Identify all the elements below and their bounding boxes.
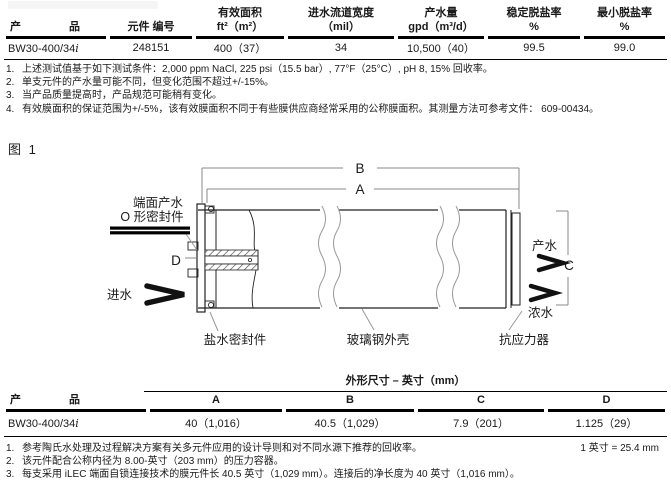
shell-break-marks bbox=[319, 206, 460, 310]
col-header-product-char1: 产 bbox=[10, 394, 21, 408]
end-seal-label-line1: 端面产水 bbox=[133, 196, 184, 210]
col-header-flow-line2: gpd（m³/d） bbox=[408, 21, 473, 35]
end-seal-bar bbox=[110, 227, 190, 230]
cell-product: BW30-400/34i bbox=[4, 42, 108, 55]
cell-min-rejection: 99.0 bbox=[582, 42, 667, 54]
dimensions-span-header: 外形尺寸 – 英寸（mm） bbox=[144, 372, 667, 392]
footnote-number: 4. bbox=[6, 103, 22, 116]
cell-dim-a: 40（1,016） bbox=[148, 415, 284, 431]
feed-arrow-icon bbox=[147, 286, 184, 303]
dim-label-b: B bbox=[355, 161, 364, 176]
col-header-dim-d: D bbox=[603, 394, 611, 408]
footnote-text: 上述测试值基于如下测试条件：2,000 ppm NaCl, 225 psi（15… bbox=[22, 63, 493, 76]
concentrate-label: 浓水 bbox=[528, 306, 554, 320]
cell-product: BW30-400/34i bbox=[4, 417, 148, 430]
anti-telescoping-label: 抗应力器 bbox=[499, 332, 550, 347]
dimensions-table-row: BW30-400/34i 40（1,016） 40.5（1,029） 7.9（2… bbox=[4, 412, 667, 434]
dimensions-table-header-row: 产 品 A B C D bbox=[4, 392, 667, 412]
cell-spacer: 34 bbox=[286, 42, 396, 54]
end-seal-label-line2: O 形密封件 bbox=[120, 209, 183, 224]
table2-bottom-rule bbox=[4, 436, 667, 437]
performance-footnotes: 1. 上述测试值基于如下测试条件：2,000 ppm NaCl, 225 psi… bbox=[6, 63, 667, 116]
permeate-arrow-icon bbox=[539, 256, 563, 270]
col-header-product-char2: 品 bbox=[69, 394, 80, 408]
footnote-text: 参考陶氏水处理及过程解决方案有关多元件应用的设计导则和对不同水源下推荐的回收率。 bbox=[22, 442, 422, 455]
cell-dim-c: 7.9（201） bbox=[416, 415, 546, 431]
fiberglass-shell-label: 玻璃钢外壳 bbox=[347, 333, 410, 347]
footnote-number: 1. bbox=[6, 63, 22, 76]
end-seal-bar bbox=[110, 231, 190, 234]
permeate-label: 产水 bbox=[532, 239, 558, 253]
dim-label-c: C bbox=[564, 258, 574, 273]
cell-part-number: 248151 bbox=[108, 42, 194, 54]
membrane-element-diagram: B A C D 端面产水 O 形密封件 进水 产水 浓水 盐水密封件 玻璃钢外壳… bbox=[0, 153, 671, 358]
col-header-product-char1: 产 bbox=[10, 21, 21, 35]
datasheet-page: 产 品 元件 编号 有效面积 ft²（m²） 进水流道宽度 （mil） 产水量 … bbox=[0, 0, 671, 484]
col-header-product: 产 品 bbox=[6, 394, 80, 408]
footnote: 3. 当产品质量提高时，产品规范可能稍有变化。 bbox=[6, 89, 667, 102]
col-header-min-rejection-line2: % bbox=[620, 21, 630, 35]
col-header-active-area-line2: ft²（m²） bbox=[217, 21, 263, 35]
cell-dim-b: 40.5（1,029） bbox=[284, 415, 416, 431]
footnote-number: 2. bbox=[6, 76, 22, 89]
table1-bottom-rule bbox=[4, 59, 667, 60]
cell-rejection: 99.5 bbox=[486, 42, 582, 54]
footnote: 2. 该元件配合公称内径为 8.00-英寸（203 mm）的压力容器。 bbox=[6, 455, 667, 468]
performance-table-row: BW30-400/34i 248151 400（37） 34 10,500（40… bbox=[4, 39, 667, 57]
leader-lines bbox=[186, 234, 522, 331]
footnote: 4. 有效膜面积的保证范围为+/-5%，该有效膜面积不同于有些膜供应商经常采用的… bbox=[6, 103, 667, 116]
footnote-text: 该元件配合公称内径为 8.00-英寸（203 mm）的压力容器。 bbox=[22, 455, 284, 468]
dim-label-a: A bbox=[355, 182, 364, 197]
footnote-text: 有效膜面积的保证范围为+/-5%，该有效膜面积不同于有些膜供应商经常采用的公称膜… bbox=[22, 103, 599, 116]
col-header-active-area-line1: 有效面积 bbox=[218, 7, 262, 21]
cell-flow: 10,500（40） bbox=[396, 40, 486, 56]
footnote: 1. 上述测试值基于如下测试条件：2,000 ppm NaCl, 225 psi… bbox=[6, 63, 667, 76]
cell-active-area: 400（37） bbox=[194, 40, 286, 56]
cell-dim-d: 1.125（29） bbox=[546, 415, 667, 431]
brine-seal-label: 盐水密封件 bbox=[204, 332, 267, 347]
footnote-number: 1. bbox=[6, 442, 22, 455]
col-header-dim-b: B bbox=[346, 394, 354, 408]
col-header-dim-c: C bbox=[477, 394, 485, 408]
col-header-dim-a: A bbox=[212, 394, 220, 408]
footnote-text: 当产品质量提高时，产品规范可能稍有变化。 bbox=[22, 89, 222, 102]
col-header-product-char2: 品 bbox=[69, 21, 80, 35]
unit-conversion-note: 1 英寸 = 25.4 mm bbox=[580, 442, 667, 455]
performance-table: 产 品 元件 编号 有效面积 ft²（m²） 进水流道宽度 （mil） 产水量 … bbox=[4, 5, 667, 60]
col-header-rejection-line2: % bbox=[529, 21, 539, 35]
footnote: 2. 单支元件的产水量可能不同，但变化范围不超过+/-15%。 bbox=[6, 76, 667, 89]
performance-table-header-row: 产 品 元件 编号 有效面积 ft²（m²） 进水流道宽度 （mil） 产水量 … bbox=[4, 5, 667, 39]
footnote-number: 2. bbox=[6, 455, 22, 468]
col-header-spacer-line1: 进水流道宽度 bbox=[308, 7, 374, 21]
end-seal-callout: 端面产水 O 形密封件 bbox=[110, 196, 190, 234]
col-header-flow-line1: 产水量 bbox=[425, 7, 458, 21]
footnote-text: 单支元件的产水量可能不同，但变化范围不超过+/-15%。 bbox=[22, 76, 274, 89]
footnote-text: 每支采用 iLEC 端面自锁连接技术的膜元件长 40.5 英寸（1,029 mm… bbox=[22, 468, 520, 481]
col-header-spacer-line2: （mil） bbox=[322, 21, 360, 35]
element-body bbox=[188, 204, 520, 312]
col-header-min-rejection-line1: 最小脱盐率 bbox=[597, 7, 652, 21]
dim-label-d: D bbox=[171, 253, 181, 268]
dimensions-table: 外形尺寸 – 英寸（mm） 产 品 A B C D BW30-400/34i 4… bbox=[4, 372, 667, 437]
col-header-product: 产 品 bbox=[6, 21, 80, 35]
col-header-part-number: 元件 编号 bbox=[127, 21, 174, 35]
footnote-number: 3. bbox=[6, 468, 22, 481]
concentrate-arrow-icon bbox=[531, 286, 555, 300]
feed-label: 进水 bbox=[107, 288, 133, 302]
footnote-number: 3. bbox=[6, 89, 22, 102]
dimensions-footnotes: 1. 参考陶氏水处理及过程解决方案有关多元件应用的设计导则和对不同水源下推荐的回… bbox=[6, 442, 667, 482]
footnote: 3. 每支采用 iLEC 端面自锁连接技术的膜元件长 40.5 英寸（1,029… bbox=[6, 468, 667, 481]
footnote: 1. 参考陶氏水处理及过程解决方案有关多元件应用的设计导则和对不同水源下推荐的回… bbox=[6, 442, 667, 455]
col-header-rejection-line1: 稳定脱盐率 bbox=[507, 7, 562, 21]
